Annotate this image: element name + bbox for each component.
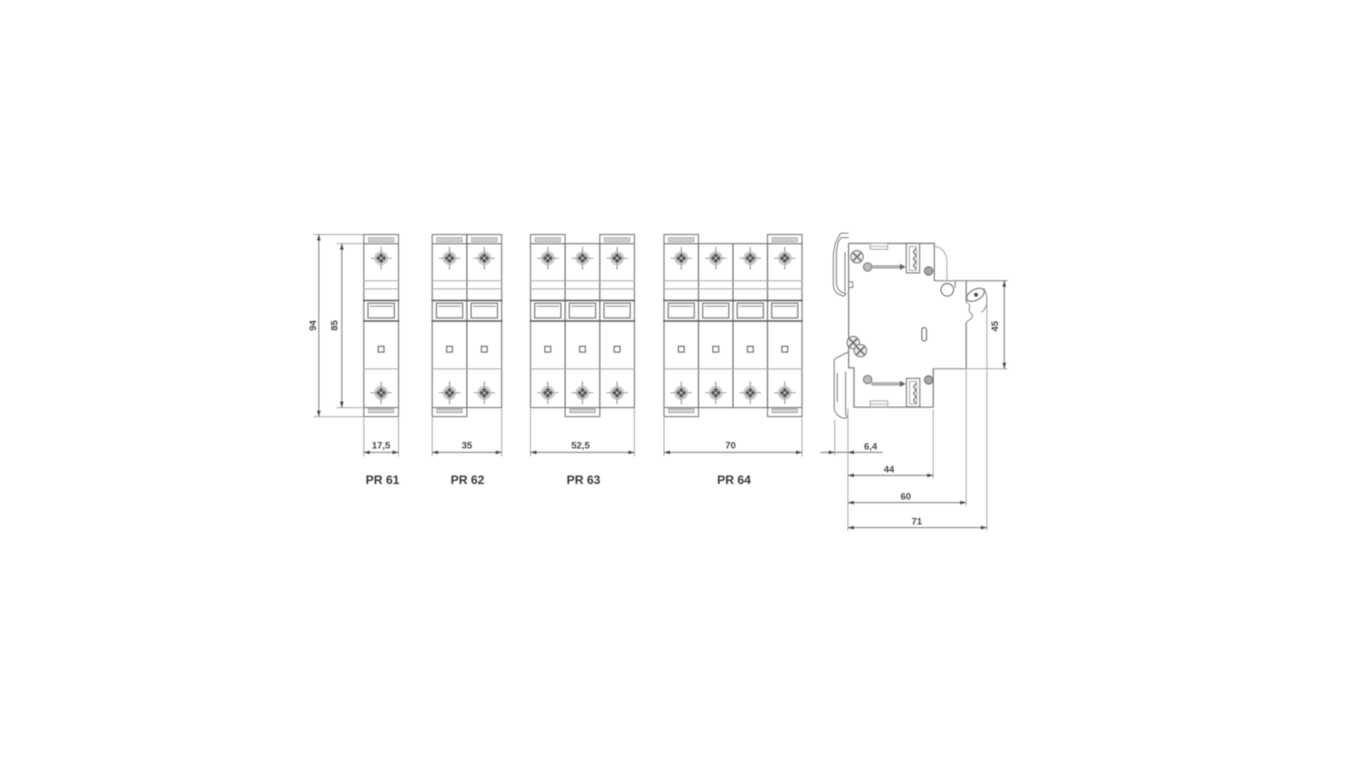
svg-text:44: 44 <box>884 465 895 476</box>
svg-text:70: 70 <box>725 441 736 452</box>
svg-text:PR 61: PR 61 <box>366 473 400 487</box>
svg-text:85: 85 <box>330 320 341 331</box>
svg-text:PR 62: PR 62 <box>451 473 485 487</box>
svg-text:17,5: 17,5 <box>372 441 391 452</box>
svg-text:94: 94 <box>308 320 319 331</box>
svg-text:35: 35 <box>462 441 473 452</box>
svg-text:45: 45 <box>990 320 1001 331</box>
svg-text:52,5: 52,5 <box>571 441 590 452</box>
svg-text:PR 64: PR 64 <box>717 473 751 487</box>
svg-text:71: 71 <box>912 517 923 528</box>
svg-text:6,4: 6,4 <box>864 442 878 453</box>
svg-text:60: 60 <box>901 492 912 503</box>
svg-text:PR 63: PR 63 <box>567 473 601 487</box>
